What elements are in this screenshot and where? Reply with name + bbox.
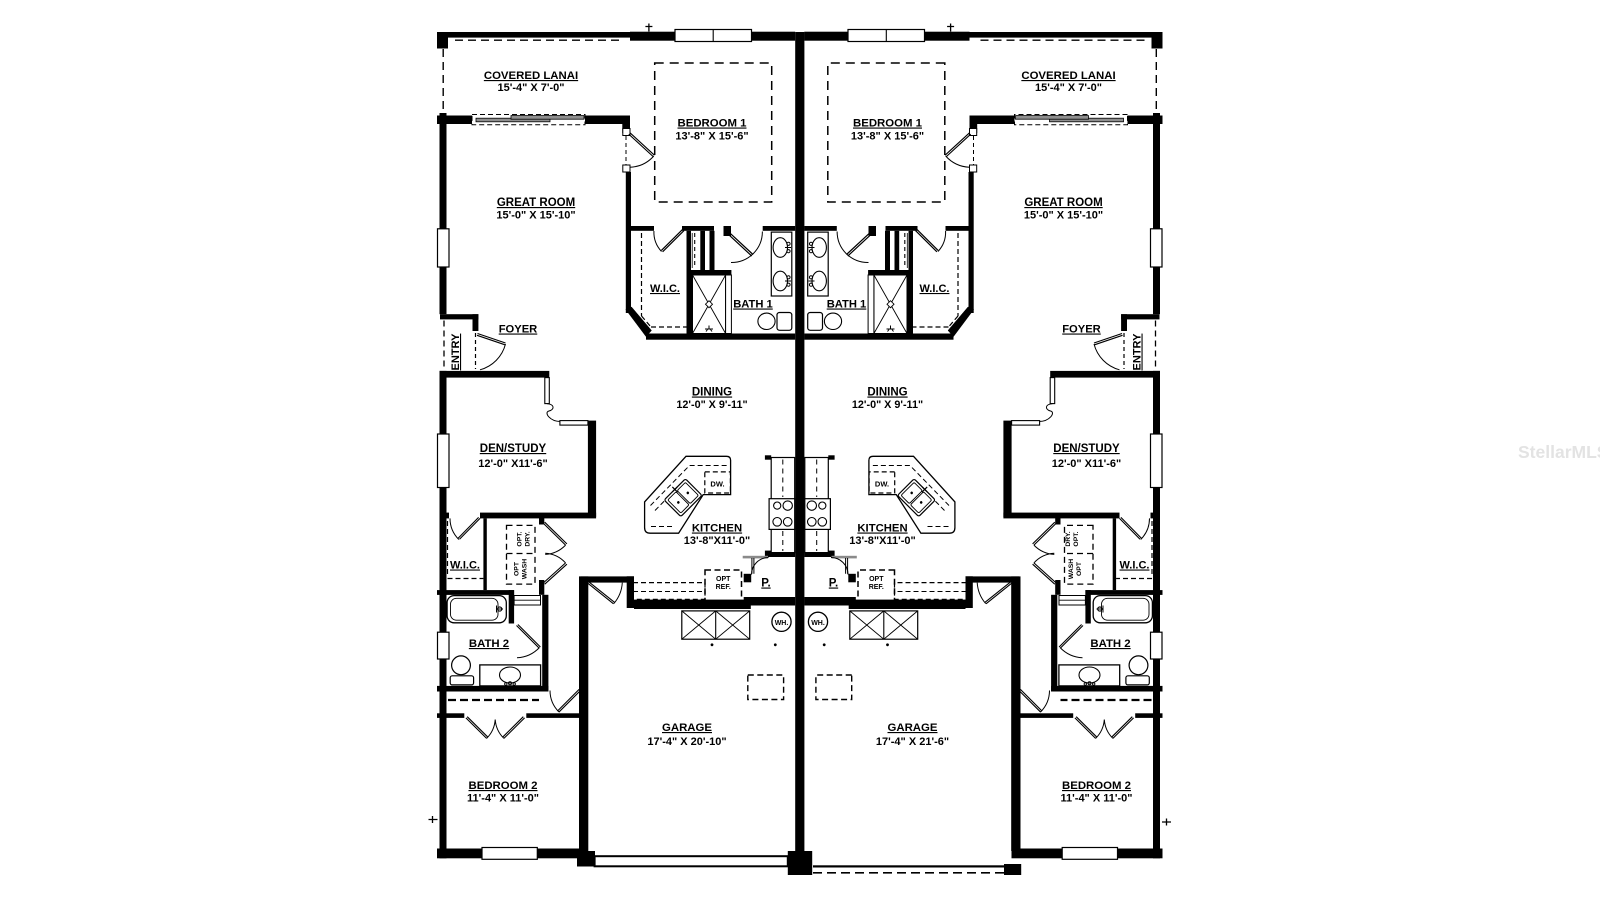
svg-text:DINING: DINING <box>692 387 732 399</box>
svg-text:13'-8" X 15'-6": 13'-8" X 15'-6" <box>851 131 924 143</box>
svg-text:11'-4" X 11'-0": 11'-4" X 11'-0" <box>467 792 539 804</box>
svg-text:13'-8" X 15'-6": 13'-8" X 15'-6" <box>675 131 748 143</box>
svg-text:WASH: WASH <box>522 559 529 579</box>
svg-text:GARAGE: GARAGE <box>662 722 712 734</box>
svg-text:BEDROOM 2: BEDROOM 2 <box>469 780 538 792</box>
svg-text:13'-8"X11'-0": 13'-8"X11'-0" <box>684 535 750 547</box>
svg-text:DEN/STUDY: DEN/STUDY <box>480 443 547 455</box>
svg-text:StellarMLS: StellarMLS <box>1518 442 1600 462</box>
svg-text:W.I.C.: W.I.C. <box>920 283 950 295</box>
svg-text:BATH 2: BATH 2 <box>469 638 509 650</box>
svg-text:W.I.C.: W.I.C. <box>1120 560 1150 572</box>
svg-text:OPT: OPT <box>1076 561 1083 576</box>
svg-text:ENTRY: ENTRY <box>1132 333 1144 371</box>
svg-text:OPT: OPT <box>869 576 884 583</box>
svg-text:13'-8"X11'-0": 13'-8"X11'-0" <box>849 535 915 547</box>
svg-text:COVERED LANAI: COVERED LANAI <box>484 70 578 82</box>
svg-text:KITCHEN: KITCHEN <box>857 523 907 535</box>
svg-text:ENTRY: ENTRY <box>450 333 462 371</box>
svg-text:DW.: DW. <box>875 480 889 489</box>
svg-text:DRY.: DRY. <box>525 531 532 546</box>
svg-text:17'-4" X 21'-6": 17'-4" X 21'-6" <box>876 736 949 748</box>
svg-text:15'-0" X 15'-10": 15'-0" X 15'-10" <box>1024 210 1103 222</box>
svg-text:KITCHEN: KITCHEN <box>692 523 742 535</box>
svg-text:OPT.: OPT. <box>517 531 524 546</box>
svg-text:FOYER: FOYER <box>499 324 538 336</box>
svg-text:15'-4" X 7'-0": 15'-4" X 7'-0" <box>497 82 564 94</box>
svg-text:BEDROOM 2: BEDROOM 2 <box>1062 780 1131 792</box>
svg-text:BATH 2: BATH 2 <box>1090 638 1130 650</box>
svg-text:DW.: DW. <box>710 480 724 489</box>
svg-text:WASH: WASH <box>1068 559 1075 579</box>
svg-text:GREAT ROOM: GREAT ROOM <box>497 197 575 209</box>
svg-text:COVERED LANAI: COVERED LANAI <box>1021 70 1115 82</box>
svg-text:12'-0" X 9'-11": 12'-0" X 9'-11" <box>676 399 747 411</box>
svg-text:REF.: REF. <box>869 584 884 591</box>
svg-text:OPT: OPT <box>514 561 521 576</box>
svg-text:WH.: WH. <box>775 620 789 627</box>
svg-text:P.: P. <box>829 578 838 590</box>
svg-text:GARAGE: GARAGE <box>888 722 938 734</box>
svg-text:BEDROOM 1: BEDROOM 1 <box>853 118 923 130</box>
svg-text:OPT: OPT <box>716 576 731 583</box>
svg-text:11'-4" X 11'-0": 11'-4" X 11'-0" <box>1061 792 1133 804</box>
svg-text:BATH 1: BATH 1 <box>827 299 867 311</box>
svg-text:W.I.C.: W.I.C. <box>650 283 680 295</box>
svg-text:DRY.: DRY. <box>1065 531 1072 546</box>
svg-text:12'-0" X11'-6": 12'-0" X11'-6" <box>478 458 547 470</box>
svg-text:BATH 1: BATH 1 <box>733 299 773 311</box>
svg-text:15'-0" X 15'-10": 15'-0" X 15'-10" <box>496 210 575 222</box>
svg-text:W.I.C.: W.I.C. <box>450 560 480 572</box>
svg-text:WH.: WH. <box>811 620 825 627</box>
svg-text:17'-4" X 20'-10": 17'-4" X 20'-10" <box>647 736 726 748</box>
svg-text:REF.: REF. <box>716 584 731 591</box>
svg-text:GREAT ROOM: GREAT ROOM <box>1024 197 1102 209</box>
svg-text:DEN/STUDY: DEN/STUDY <box>1053 443 1120 455</box>
svg-text:15'-4" X 7'-0": 15'-4" X 7'-0" <box>1035 82 1102 94</box>
svg-text:12'-0" X 9'-11": 12'-0" X 9'-11" <box>852 399 923 411</box>
svg-text:P.: P. <box>761 578 770 590</box>
svg-text:BEDROOM 1: BEDROOM 1 <box>678 118 748 130</box>
svg-text:FOYER: FOYER <box>1062 324 1101 336</box>
svg-text:OPT.: OPT. <box>1073 531 1080 546</box>
svg-text:12'-0" X11'-6": 12'-0" X11'-6" <box>1052 458 1121 470</box>
svg-text:DINING: DINING <box>867 387 907 399</box>
